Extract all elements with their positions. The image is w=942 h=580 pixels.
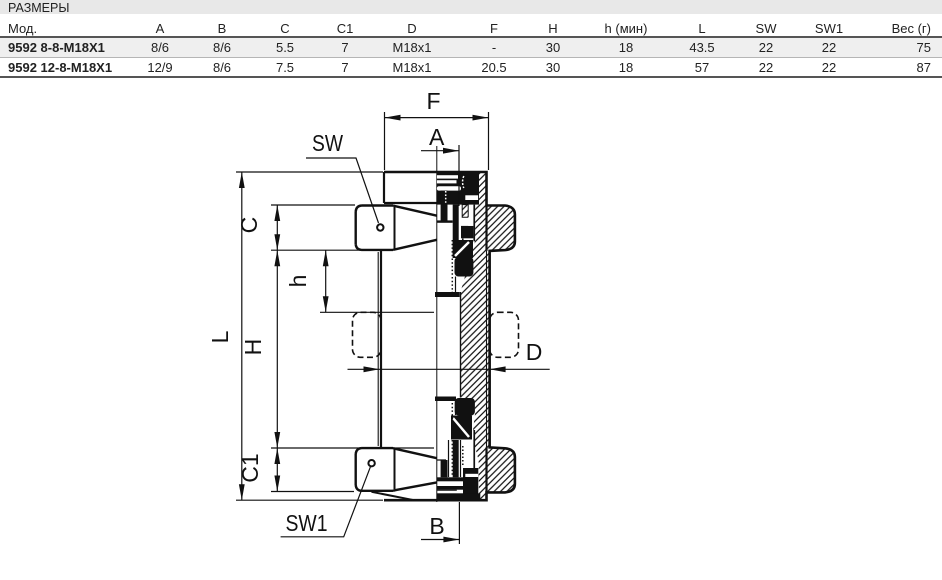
svg-text:C1: C1	[237, 453, 263, 482]
svg-text:B: B	[429, 513, 444, 539]
svg-text:h: h	[285, 275, 311, 288]
svg-text:SW1: SW1	[286, 510, 328, 536]
svg-text:D: D	[526, 339, 543, 365]
svg-text:H: H	[240, 339, 266, 356]
svg-text:SW: SW	[312, 130, 343, 156]
svg-text:A: A	[429, 124, 445, 150]
svg-text:C: C	[236, 217, 262, 234]
svg-text:F: F	[426, 88, 440, 114]
svg-text:L: L	[207, 330, 233, 343]
